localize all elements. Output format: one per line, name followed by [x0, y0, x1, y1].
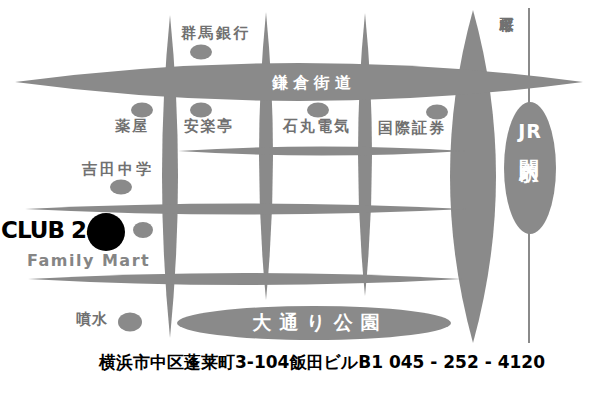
road-horizontal-4 [28, 273, 462, 285]
ishimaru-denki-label: 石丸電気 [283, 118, 351, 135]
family-mart-dot [133, 222, 153, 238]
road-vertical-2 [259, 12, 273, 300]
yoshida-junior-high-label: 吉田中学 [82, 161, 154, 178]
gunma-bank-dot [190, 45, 212, 60]
road-vertical-1 [162, 15, 178, 338]
jr-kannai-station-label: JR 関内駅 [508, 120, 552, 153]
address-text: 横浜市中区蓬莱町3-104飯田ビルB1 045 - 252 - 4120 [99, 351, 545, 374]
road-vertical-wide [450, 10, 496, 343]
station-label-jr: JR [518, 120, 542, 142]
fountain-dot [118, 313, 142, 332]
kokusai-shoken-label: 国際証券 [378, 120, 446, 137]
family-mart-label: Family Mart [27, 252, 150, 270]
odori-park-label: 大通り公園 [252, 312, 387, 334]
ishimaru-denki-dot [307, 103, 329, 118]
kokusai-shoken-dot [426, 105, 448, 120]
anrakutei-dot [190, 103, 212, 118]
road-horizontal-2 [178, 147, 465, 156]
pharmacy-label: 薬屋 [115, 118, 149, 135]
fountain-label: 噴水 [76, 311, 108, 328]
road-horizontal-3 [25, 204, 466, 215]
access-map: 群馬銀行 至桜木町 鎌倉街道 薬屋 安楽亭 石丸電気 国際証券 JR 関内駅 吉… [0, 0, 600, 400]
kamakura-kaido-label: 鎌倉街道 [272, 74, 356, 92]
station-label-kannai: 関内駅 [517, 144, 543, 153]
club24-label: CLUB 24 [1, 217, 101, 243]
map-shapes [0, 0, 600, 400]
anrakutei-label: 安楽亭 [184, 118, 234, 135]
to-sakuragicho-label: 至桜木町 [499, 6, 515, 8]
gunma-bank-label: 群馬銀行 [181, 25, 251, 42]
yoshida-junior-high-dot [110, 180, 132, 195]
pharmacy-dot [131, 103, 153, 118]
